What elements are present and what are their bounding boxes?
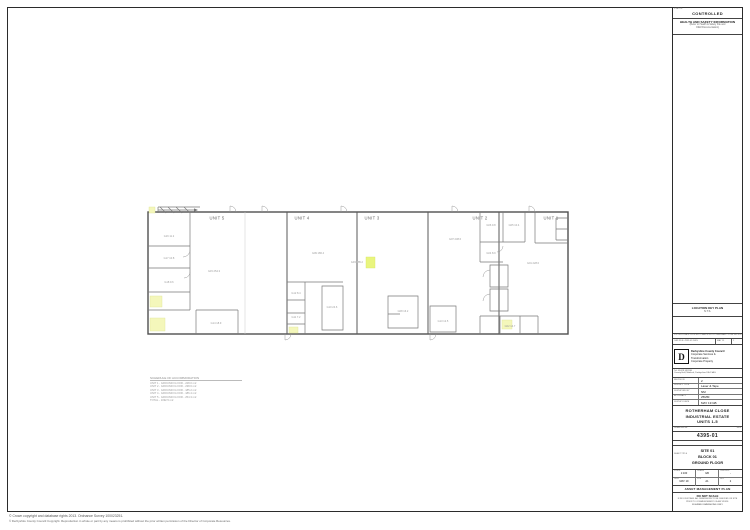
schedule-row: TOTAL - 1092.5 m2 xyxy=(150,399,242,402)
field-label: SURVEYED BY xyxy=(673,389,699,394)
meta-value: MAY 19 xyxy=(674,480,694,483)
org-contact: Tel: 01629 533190 County Hall, Matlock, … xyxy=(673,369,742,378)
field-label: ACCURACY xyxy=(673,395,699,400)
meta-value: 1:100 xyxy=(674,472,694,475)
status-box: STATUS CONTROLLED xyxy=(673,8,742,19)
location-key-scale: N.T.S. xyxy=(673,310,742,313)
status-value: CONTROLLED xyxy=(692,11,723,16)
field-label: SURVEY DATE xyxy=(673,400,699,405)
meta-value: - xyxy=(720,472,741,475)
meta-value: 2 xyxy=(720,480,741,483)
sheet-title-box: SITE 01 BLOCK 01 GROUND FLOOR xyxy=(673,446,742,470)
revision-date: MAY 19 xyxy=(716,339,732,344)
org-block: D Derbyshire County Council Corporate Se… xyxy=(673,345,742,369)
title-block-spacer xyxy=(673,35,742,304)
sheet-title-line: GROUND FLOOR xyxy=(673,460,742,466)
hs-subtitle: O&M Documentation) xyxy=(673,27,742,30)
field-label: SURVEY TYPE xyxy=(673,384,699,389)
field-value: 25MM xyxy=(699,395,742,400)
survey-fields: REVISION 2 SURVEY TYPE Laser & Tape SURV… xyxy=(673,378,742,406)
health-safety-box: HEALTH AND SAFETY INFORMATION (Refer to … xyxy=(673,19,742,35)
crown-copyright-line: © Crown copyright and database rights 20… xyxy=(9,514,123,518)
project-title-line: UNITS 1-5 xyxy=(673,419,742,425)
meta-cell: DATE MAY 19 xyxy=(673,478,696,486)
survey-field-row: SURVEY DATE MAY 19 GB xyxy=(673,400,742,405)
file-path: S:\CORPORATE PROPERTY\AMP\4395 ROTHERHAM… xyxy=(673,334,742,336)
notes-box: DO NOT SCALE IF IN DOUBT ASK. ALL DIMENS… xyxy=(673,493,742,511)
revision-rev: 2 xyxy=(732,339,742,344)
meta-grid: SCALE 1:100 DRAWN GB CHECKED - DATE MAY … xyxy=(673,470,742,486)
council-logo: D xyxy=(674,349,689,364)
drawing-sheet: G03 185.2 UNIT 5 UNIT 4 UNIT 3 UNIT 2 UN… xyxy=(0,0,750,530)
meta-cell: REV 2 xyxy=(719,478,742,486)
field-value: NM xyxy=(699,389,742,394)
location-key-caption: LOCATION KEY PLAN N.T.S. xyxy=(673,304,742,317)
plan-type-strip: ASSET MANAGEMENT PLAN xyxy=(673,486,742,493)
notes-body: IF IN DOUBT ASK. ALL DIMENSIONS TO BE CH… xyxy=(673,498,742,503)
revision-desc: CAD FILE: 4395-01.DWG xyxy=(673,339,716,344)
field-label: REVISION xyxy=(673,378,699,383)
location-key-box xyxy=(673,317,742,334)
drawing-no-label: DRAWING No. xyxy=(674,427,688,431)
org-name-lines: Derbyshire County Council Corporate Serv… xyxy=(691,350,724,362)
field-value: 2 xyxy=(699,378,742,383)
org-dept: Corporate Property xyxy=(691,360,724,363)
field-value: MAY 19 GB xyxy=(699,400,742,405)
project-title: ROTHERHAM CLOSE INDUSTRIAL ESTATE UNITS … xyxy=(673,406,742,427)
drawing-number: 4395-01 xyxy=(697,433,718,439)
field-value: Laser & Tape xyxy=(699,384,742,389)
meta-cell: DRAWN GB xyxy=(696,470,719,478)
drawing-number-box: 4395-01 xyxy=(673,432,742,441)
meta-cell: SCALE 1:100 xyxy=(673,470,696,478)
area-schedule: SCHEDULE OF ACCOMMODATION UNIT 1 - GROUN… xyxy=(150,376,242,402)
notes-footer: FIGURED DIMENSIONS ONLY xyxy=(673,504,742,506)
org-address: County Hall, Matlock, Derbyshire DE4 3AG xyxy=(674,372,741,375)
sheet-border xyxy=(7,7,743,512)
rev-label: REV xyxy=(737,427,741,431)
plan-type: ASSET MANAGEMENT PLAN xyxy=(685,487,731,491)
schedule-title: SCHEDULE OF ACCOMMODATION xyxy=(150,376,242,381)
status-corner-label: STATUS xyxy=(674,8,682,10)
meta-value: GB xyxy=(697,472,717,475)
council-copyright-line: © Derbyshire County Council Copyright. R… xyxy=(9,519,231,523)
meta-cell: CHECKED - xyxy=(719,470,742,478)
meta-cell: SIZE A1 xyxy=(696,478,719,486)
meta-value: A1 xyxy=(697,480,717,483)
title-block: STATUS CONTROLLED HEALTH AND SAFETY INFO… xyxy=(672,7,743,512)
